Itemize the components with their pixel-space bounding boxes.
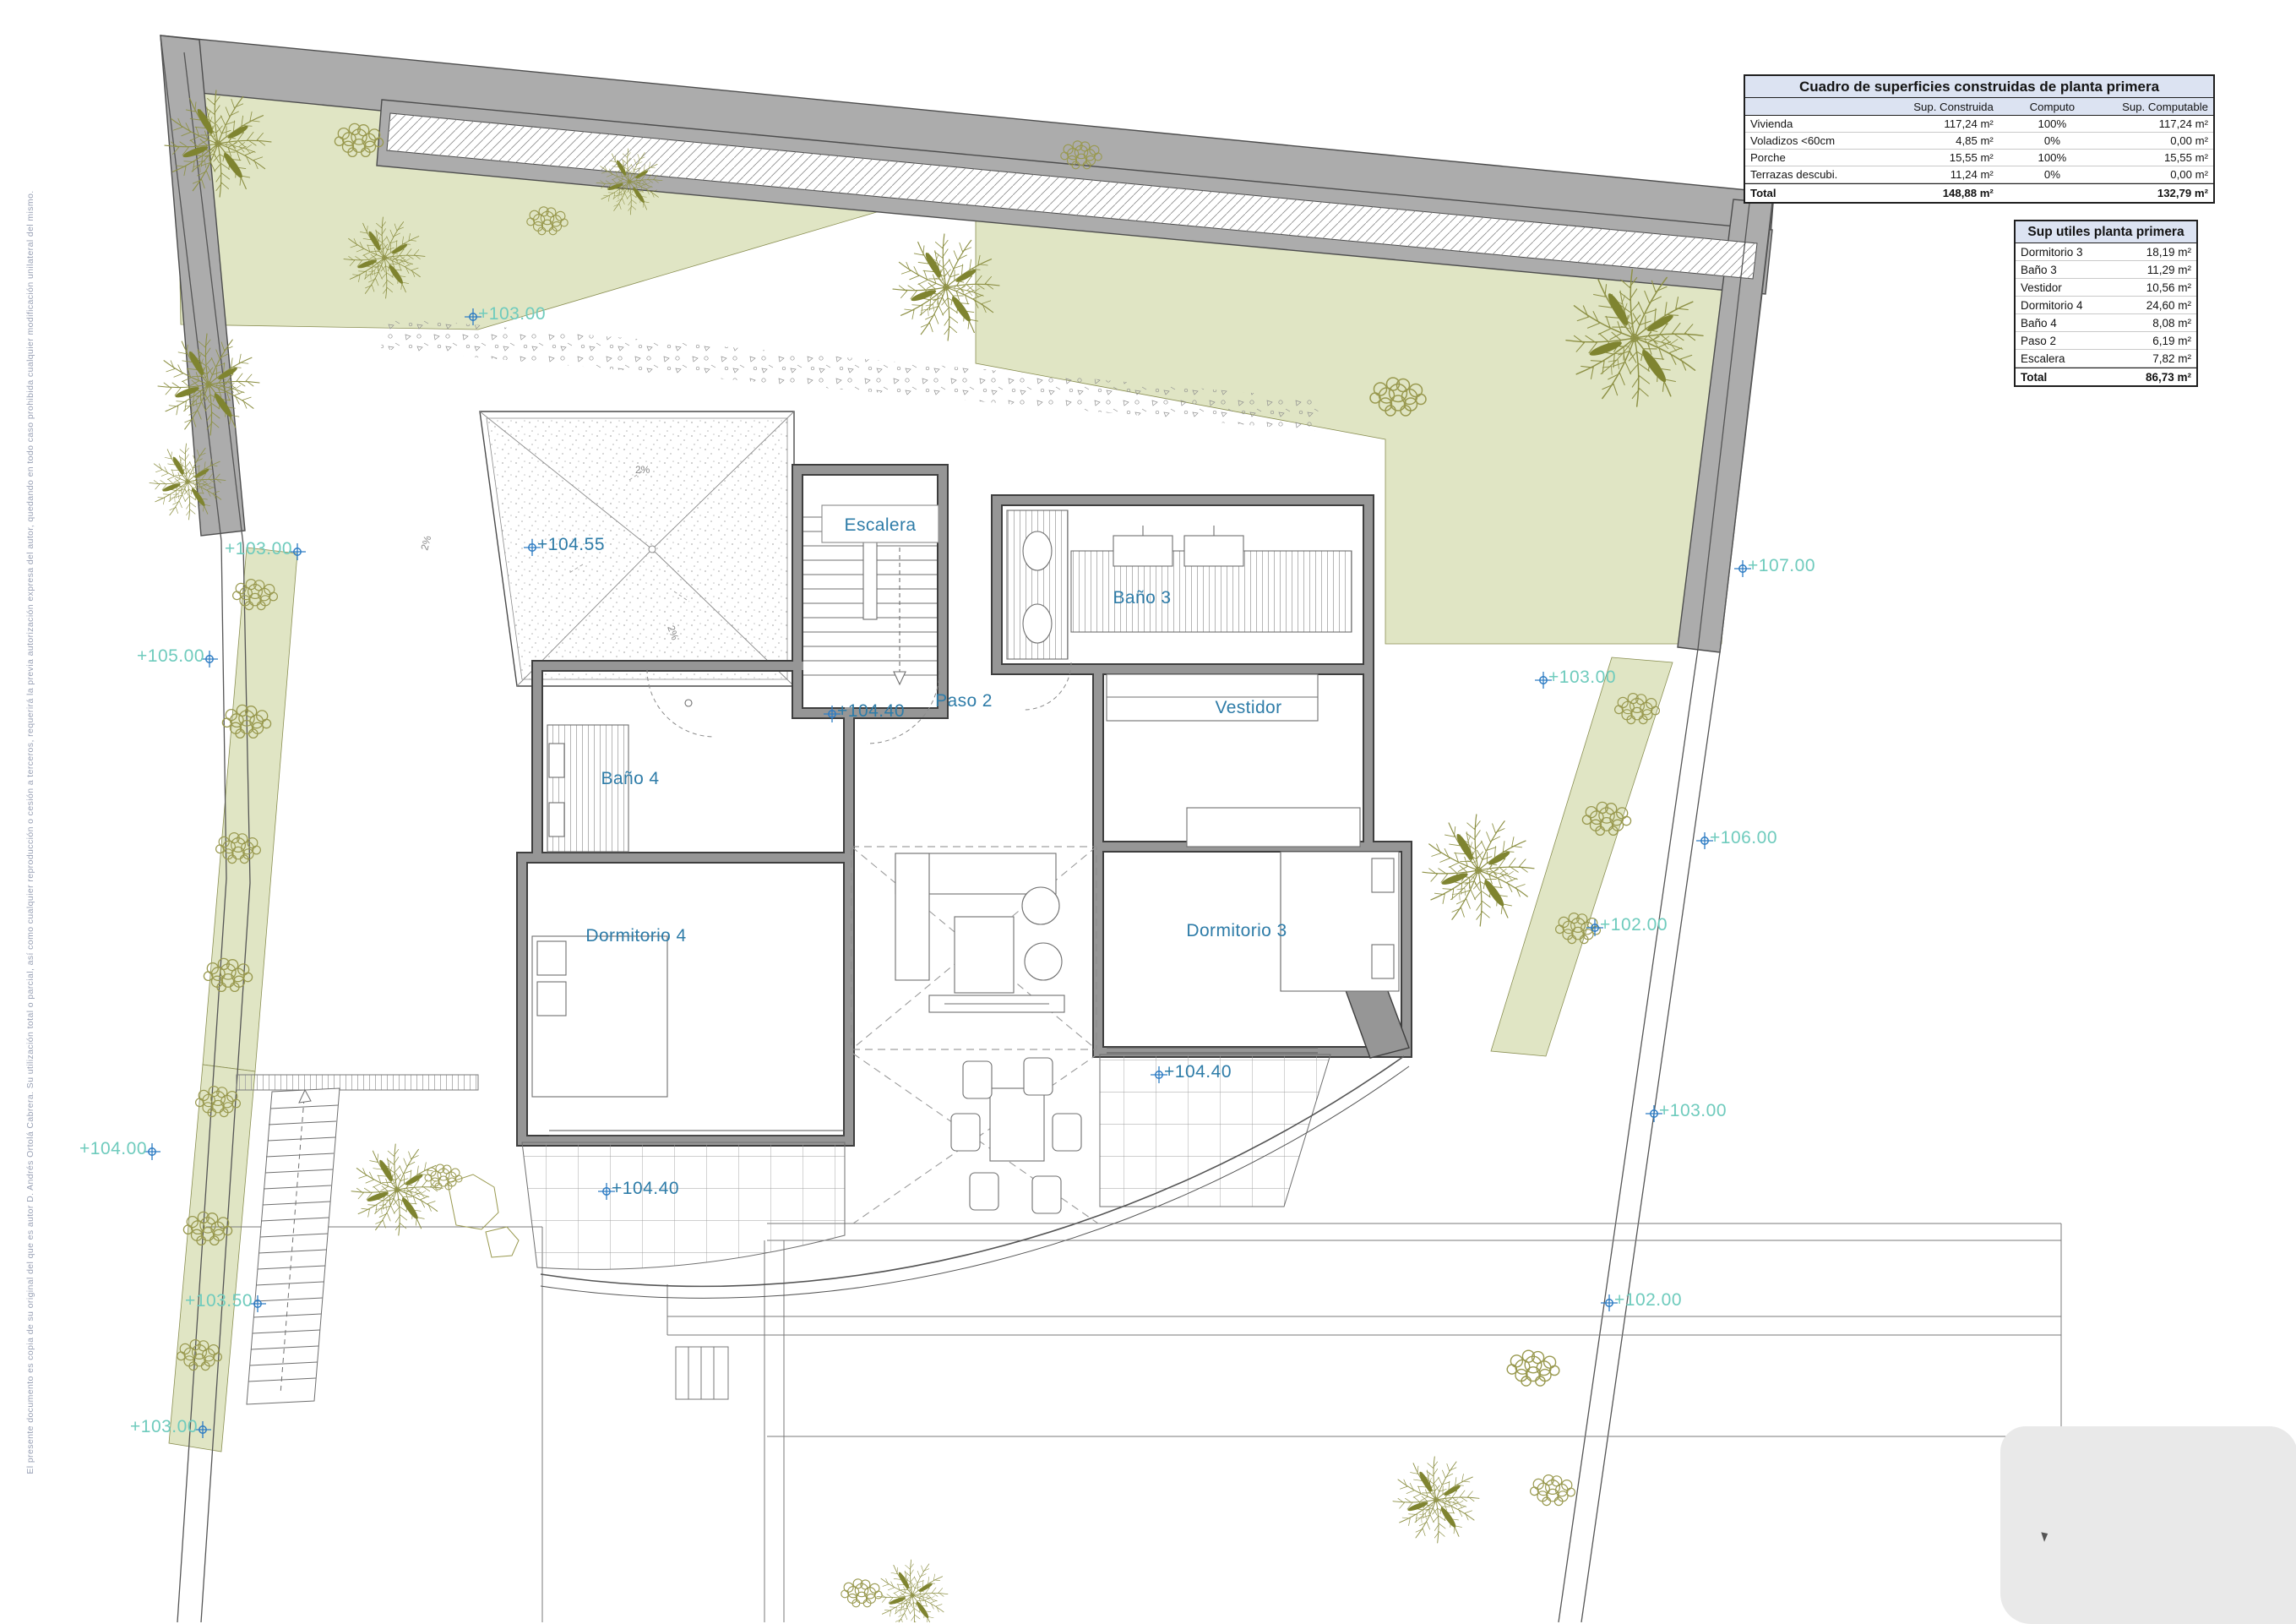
room-label-vestidor: Vestidor — [1215, 698, 1281, 718]
svg-text:2%: 2% — [635, 464, 650, 476]
elevation-marker: +103.00 — [288, 542, 307, 561]
site-plan-drawing: 2% 2% 2% — [0, 0, 2296, 1622]
living-void — [851, 847, 1096, 1049]
table-row: Dormitorio 3 18,19 m² — [2016, 243, 2196, 261]
elevation-marker: +103.50 — [248, 1294, 267, 1313]
elevation-marker: +104.55 — [523, 538, 541, 557]
elevation-marker: +103.00 — [193, 1420, 212, 1439]
svg-text:2%: 2% — [418, 534, 433, 552]
elevation-marker: +104.00 — [143, 1142, 161, 1161]
elevation-value: +103.50 — [185, 1291, 253, 1311]
useful-surfaces-table: Sup utiles planta primera Dormitorio 3 1… — [2014, 220, 2198, 387]
table-row: Dormitorio 4 24,60 m² — [2016, 297, 2196, 314]
blank-panel — [2000, 1426, 2296, 1624]
table-row: Vivienda 117,24 m² 100% 117,24 m² — [1745, 116, 2213, 133]
column-header: Sup. Computable — [2101, 101, 2213, 113]
elevation-value: +105.00 — [137, 646, 204, 667]
elevation-value: +102.00 — [1600, 915, 1668, 935]
room-label-bano3: Baño 3 — [1113, 588, 1172, 608]
table-row: Voladizos <60cm 4,85 m² 0% 0,00 m² — [1745, 133, 2213, 150]
table-row: Terrazas descubi. 11,24 m² 0% 0,00 m² — [1745, 166, 2213, 183]
elevation-value: +106.00 — [1710, 828, 1777, 848]
bath3-fixtures — [1007, 510, 1352, 659]
table-title: Sup utiles planta primera — [2016, 221, 2196, 243]
table-row: Paso 2 6,19 m² — [2016, 332, 2196, 350]
room-label-dormitorio4: Dormitorio 4 — [585, 926, 686, 946]
room-label-paso2: Paso 2 — [935, 691, 993, 711]
built-surfaces-table: Cuadro de superficies construidas de pla… — [1744, 74, 2215, 204]
elevation-marker: +103.00 — [1534, 671, 1553, 689]
column-header: Sup. Construida — [1876, 101, 2004, 113]
elevation-marker: +104.40 — [823, 705, 841, 723]
table-row: Escalera 7,82 m² — [2016, 350, 2196, 368]
copyright-disclaimer: El presente documento es copia de su ori… — [25, 190, 35, 1474]
elevation-value: +102.00 — [1614, 1290, 1682, 1311]
elevation-value: +104.55 — [537, 535, 605, 555]
table-total-row: Total 148,88 m² 132,79 m² — [1745, 183, 2213, 202]
elevation-value: +103.00 — [1659, 1101, 1727, 1121]
rocks — [448, 1174, 519, 1257]
room-label-bano4: Baño 4 — [601, 769, 660, 789]
elevation-marker: +104.40 — [597, 1182, 616, 1201]
room-label-dormitorio3: Dormitorio 3 — [1186, 921, 1287, 941]
stair-treads — [803, 476, 939, 707]
elevation-value: +103.00 — [225, 539, 292, 559]
table-total-row: Total 86,73 m² — [2016, 368, 2196, 385]
elevation-marker: +104.40 — [1150, 1065, 1168, 1084]
elevation-marker: +103.00 — [1645, 1104, 1663, 1123]
bed-dorm3 — [1281, 852, 1399, 991]
elevation-value: +103.00 — [478, 304, 546, 324]
table-row: Porche 15,55 m² 100% 15,55 m² — [1745, 150, 2213, 166]
elevation-value: +104.40 — [612, 1179, 679, 1199]
elevation-value: +103.00 — [1548, 668, 1616, 688]
elevation-marker: +103.00 — [464, 308, 482, 326]
table-row: Baño 3 11,29 m² — [2016, 261, 2196, 279]
elevation-value: +104.00 — [79, 1139, 147, 1159]
exterior-stair — [247, 1088, 340, 1404]
table-row: Vestidor 10,56 m² — [2016, 279, 2196, 297]
elevation-value: +104.40 — [837, 701, 905, 722]
elevation-value: +104.40 — [1164, 1062, 1232, 1082]
elevation-marker: +102.00 — [1600, 1294, 1619, 1312]
elevation-marker: +106.00 — [1695, 831, 1714, 850]
elevation-marker: +107.00 — [1733, 559, 1752, 578]
floor-plan-sheet: 2% 2% 2% Escalera Baño 3 Vestidor Paso 2… — [0, 0, 2296, 1622]
table-header-row: Sup. Construida Computo Sup. Computable — [1745, 98, 2213, 116]
column-header: Computo — [2004, 101, 2101, 113]
terrace-dining — [853, 1054, 1098, 1223]
elevation-marker: +102.00 — [1586, 918, 1604, 937]
room-label-escalera: Escalera — [845, 515, 917, 536]
elevation-marker: +105.00 — [200, 650, 219, 668]
table-title: Cuadro de superficies construidas de pla… — [1745, 76, 2213, 98]
elevation-value: +107.00 — [1748, 556, 1815, 576]
elevation-value: +103.00 — [130, 1417, 198, 1437]
bed-dorm4 — [532, 936, 667, 1097]
table-row: Baño 4 8,08 m² — [2016, 314, 2196, 332]
